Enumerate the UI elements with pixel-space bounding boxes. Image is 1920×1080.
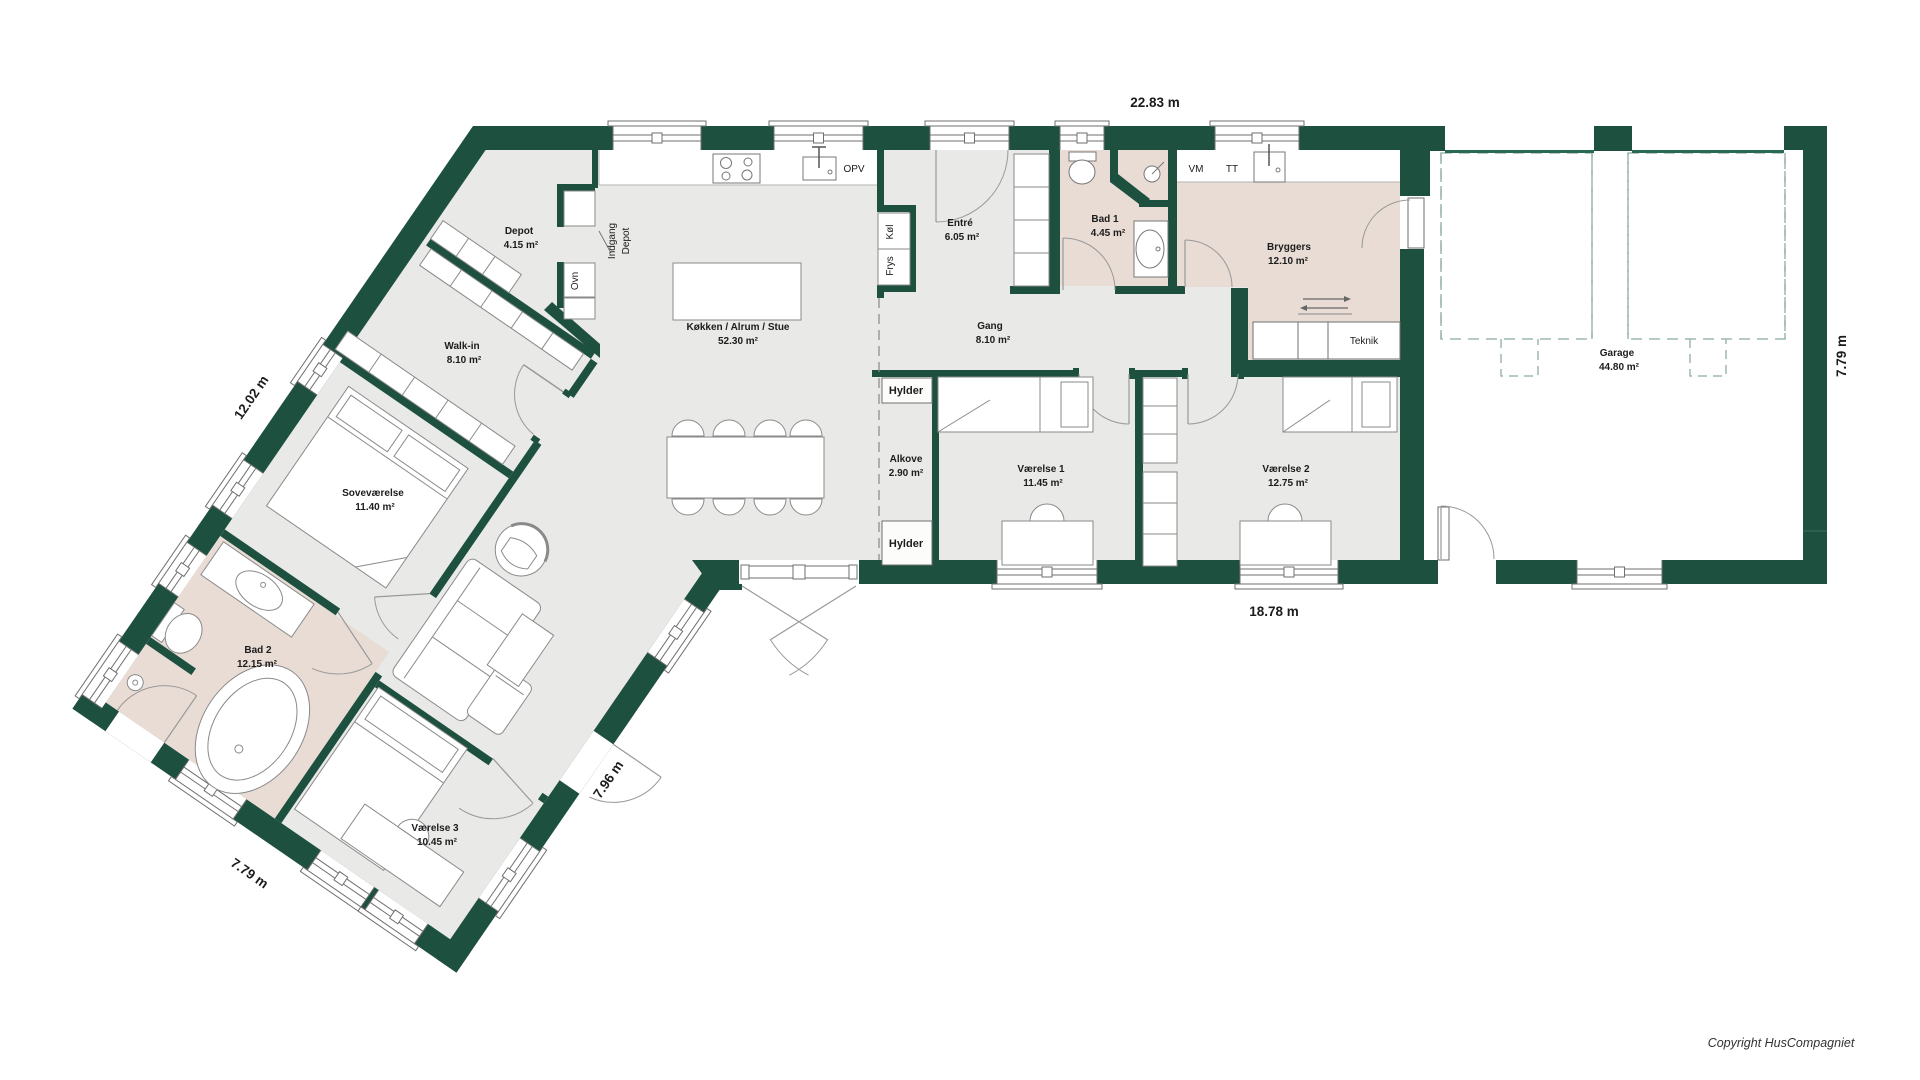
svg-text:Indgang: Indgang: [607, 223, 618, 259]
svg-text:Køl: Køl: [885, 225, 896, 240]
svg-text:22.83 m: 22.83 m: [1130, 95, 1180, 110]
svg-text:OPV: OPV: [843, 164, 864, 175]
svg-text:Copyright HusCompagniet: Copyright HusCompagniet: [1708, 1036, 1855, 1050]
svg-text:Ovn: Ovn: [570, 272, 581, 290]
svg-text:10.45 m²: 10.45 m²: [417, 837, 458, 848]
svg-text:Teknik: Teknik: [1350, 336, 1379, 347]
svg-text:Depot: Depot: [505, 226, 534, 237]
svg-text:Hylder: Hylder: [889, 538, 924, 550]
svg-text:Bryggers: Bryggers: [1267, 242, 1311, 253]
svg-text:Køkken / Alrum / Stue: Køkken / Alrum / Stue: [687, 322, 790, 333]
svg-text:7.79 m: 7.79 m: [228, 855, 271, 891]
svg-text:4.15 m²: 4.15 m²: [504, 240, 539, 251]
svg-text:Alkove: Alkove: [890, 454, 923, 465]
svg-text:44.80 m²: 44.80 m²: [1599, 362, 1640, 373]
svg-text:Gang: Gang: [977, 321, 1003, 332]
svg-text:12.75 m²: 12.75 m²: [1268, 478, 1309, 489]
svg-text:Depot: Depot: [621, 227, 632, 254]
svg-text:12.15 m²: 12.15 m²: [237, 659, 278, 670]
svg-text:VM: VM: [1189, 164, 1204, 175]
svg-text:Entré: Entré: [947, 218, 973, 229]
svg-text:2.90 m²: 2.90 m²: [889, 468, 924, 479]
svg-text:Bad 2: Bad 2: [244, 645, 272, 656]
svg-text:18.78 m: 18.78 m: [1249, 604, 1299, 619]
svg-text:Garage: Garage: [1600, 348, 1635, 359]
svg-text:Walk-in: Walk-in: [444, 341, 479, 352]
svg-text:4.45 m²: 4.45 m²: [1091, 228, 1126, 239]
svg-text:Hylder: Hylder: [889, 385, 924, 397]
svg-text:Værelse 2: Værelse 2: [1262, 464, 1310, 475]
svg-text:Frys: Frys: [885, 256, 896, 275]
svg-text:11.45 m²: 11.45 m²: [1023, 478, 1063, 489]
svg-text:11.40 m²: 11.40 m²: [355, 502, 395, 513]
svg-text:7.79 m: 7.79 m: [1834, 335, 1849, 377]
svg-text:8.10 m²: 8.10 m²: [447, 355, 482, 366]
svg-text:8.10 m²: 8.10 m²: [976, 335, 1011, 346]
svg-text:6.05 m²: 6.05 m²: [945, 232, 980, 243]
svg-text:Soveværelse: Soveværelse: [342, 488, 404, 499]
svg-text:52.30 m²: 52.30 m²: [718, 336, 759, 347]
svg-text:Værelse 3: Værelse 3: [411, 823, 459, 834]
svg-text:TT: TT: [1226, 164, 1238, 175]
svg-text:12.10 m²: 12.10 m²: [1268, 256, 1309, 267]
svg-text:Værelse 1: Værelse 1: [1017, 464, 1065, 475]
svg-text:Bad 1: Bad 1: [1091, 214, 1119, 225]
svg-text:12.02 m: 12.02 m: [231, 373, 271, 422]
